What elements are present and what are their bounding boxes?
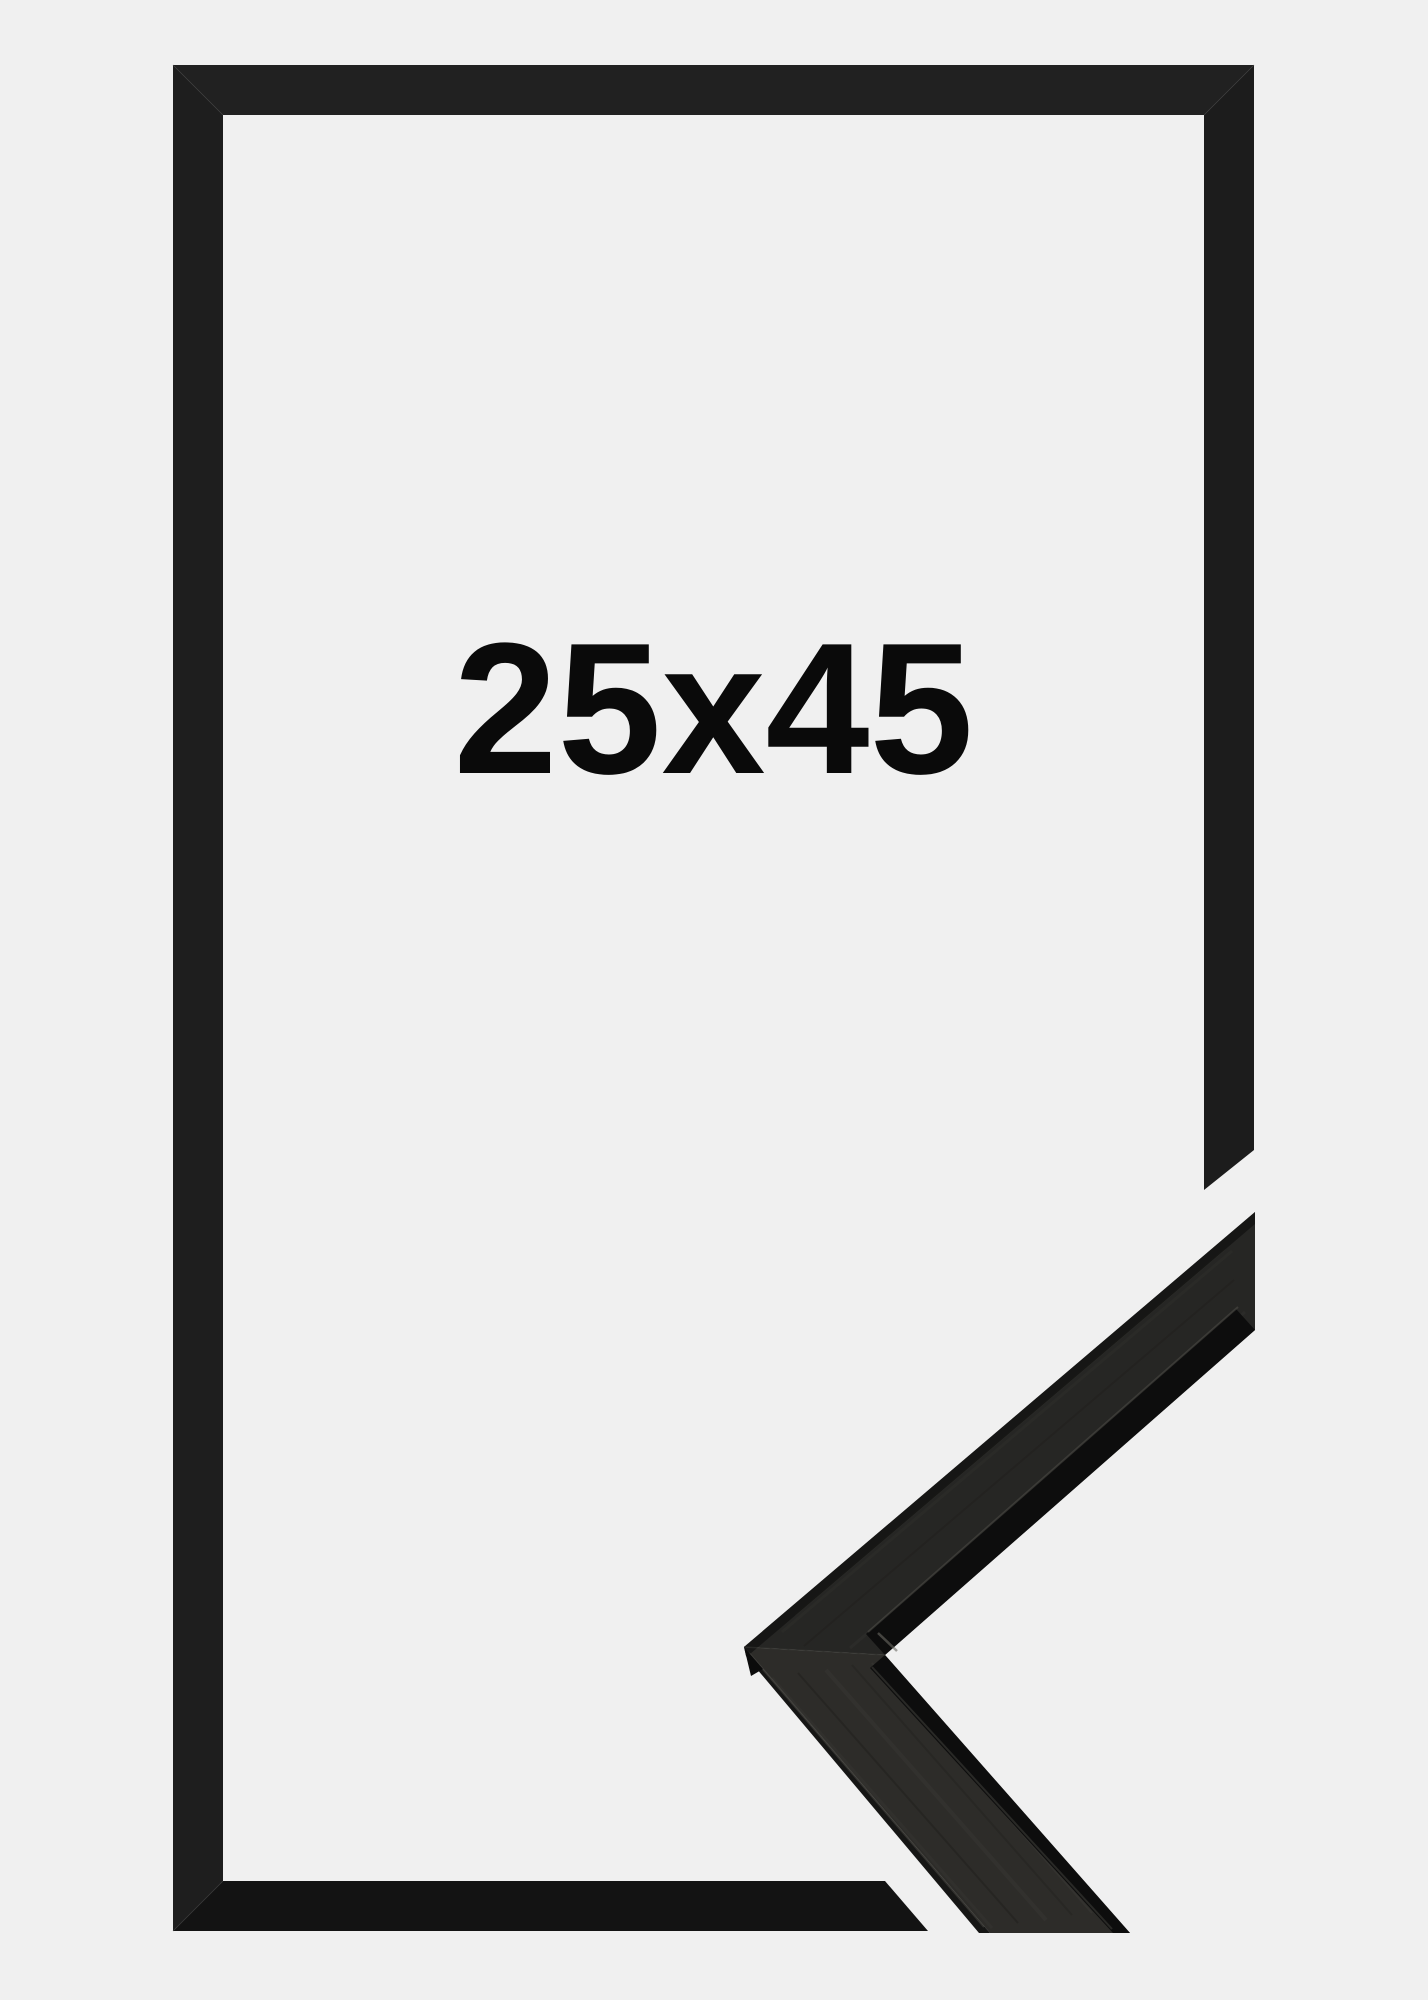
frame-illustration (0, 0, 1428, 2000)
size-label: 25x45 (173, 615, 1254, 802)
frame-bar-top (173, 65, 1254, 115)
frame-bar-bottom (173, 1881, 928, 1931)
product-image: 25x45 (0, 0, 1428, 2000)
frame-bar-left (173, 65, 223, 1931)
